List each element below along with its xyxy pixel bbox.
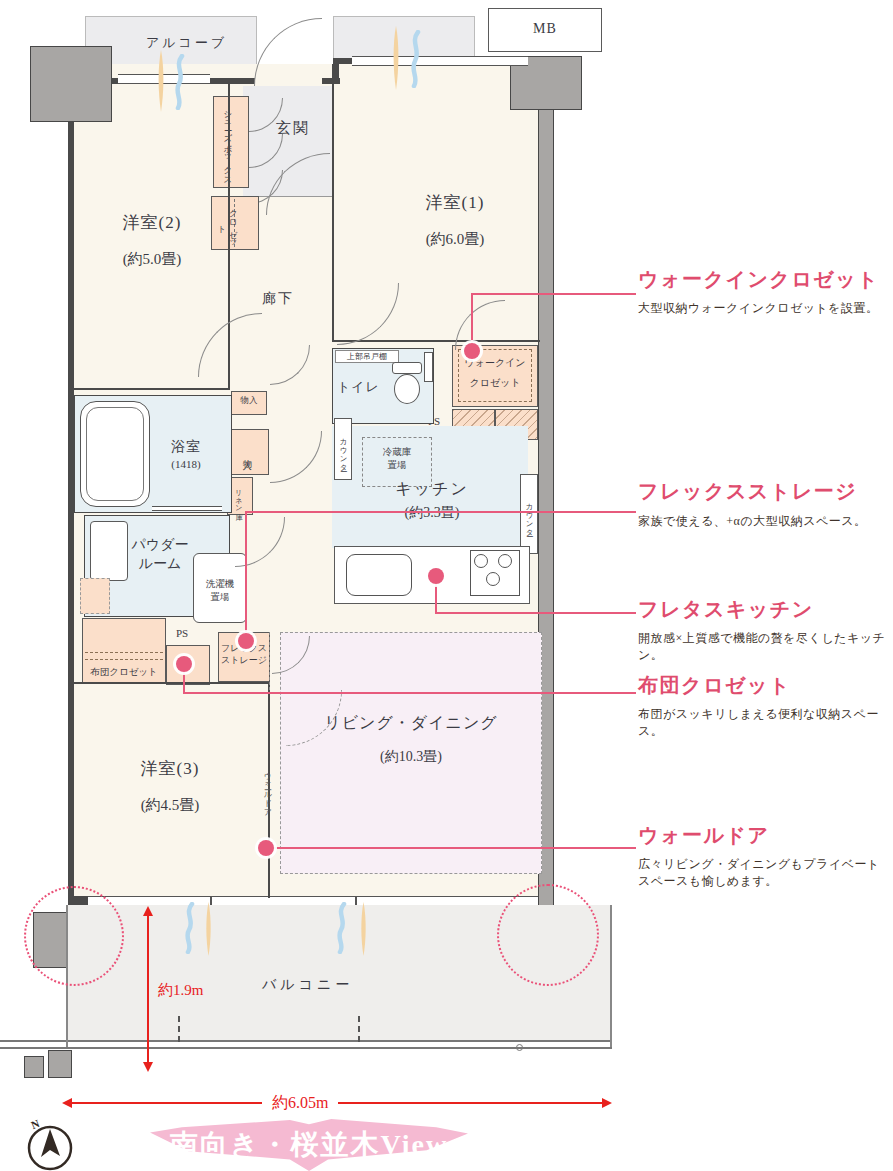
depth-dimension-line [147, 914, 149, 1064]
annotation-title-walldoor: ウォールドア [638, 822, 769, 849]
annotation-body-wic: 大型収納ウォークインクロゼットを設置。 [638, 300, 890, 317]
alcove-label: アルコーブ [146, 34, 227, 52]
powder-peach-box [80, 578, 110, 614]
callout-line-flex [245, 511, 636, 513]
callout-dot-kitchen [428, 568, 444, 584]
counter-left-label: カウンター [338, 422, 348, 478]
balcony-divider-dash [178, 1016, 180, 1042]
toilet-label: トイレ [337, 378, 380, 396]
counter-right-label: カウンター [524, 480, 534, 550]
annotation-title-flex: フレックスストレージ [638, 478, 857, 505]
ld-size: (約10.3畳) [300, 748, 522, 767]
powder-line2: ルーム [118, 555, 202, 574]
depth-arrow-down [143, 1062, 153, 1072]
western1-size: (約6.0畳) [385, 229, 525, 249]
balcony-divider-dash [358, 1016, 360, 1042]
balcony-end-block [48, 1050, 72, 1078]
western2-label: 洋室(2) (約5.0畳) [82, 212, 222, 269]
airflow-icon [172, 54, 186, 110]
balcony-rail-outer [0, 1040, 612, 1042]
annotation-title-kitchen: フレタスキッチン [638, 596, 814, 623]
washer-space-label: 洗濯機 置場 [193, 578, 247, 604]
bathroom-size: (1418) [150, 457, 222, 472]
annotation-title-wic: ウォークインクロゼット [638, 266, 879, 293]
view-banner-label: 南向き・桜並木View [150, 1126, 468, 1164]
kitchen-size: (約3.3畳) [352, 504, 512, 523]
balcony-end-block [24, 1056, 44, 1078]
powder-room-label: パウダー ルーム [118, 536, 202, 574]
fridge-space-label: 冷蔵庫 置場 [362, 446, 432, 472]
callout-line-wic [471, 293, 636, 295]
common-corridor-area [333, 16, 475, 59]
western1-label: 洋室(1) (約6.0畳) [385, 192, 525, 249]
wic-line2: クロゼット [452, 376, 538, 390]
meter-box-label: MB [488, 20, 602, 39]
ps2-label: PS [176, 626, 188, 641]
futon-shelf-lines [85, 652, 163, 660]
sunlight-icon [356, 902, 371, 956]
wall-door-label: ウォールドア [261, 750, 272, 830]
western2-name: 洋室(2) [82, 212, 222, 235]
pillar-highlight-circle [24, 886, 124, 986]
balcony-label: バルコニー [262, 976, 353, 995]
fridge-line2: 置場 [362, 459, 432, 472]
stove-burner [474, 554, 488, 568]
sunlight-icon [388, 26, 404, 90]
western3-label: 洋室(3) (約4.5畳) [100, 758, 240, 815]
linen-label: リネン庫 [233, 479, 242, 513]
kitchen-label: キッチン (約3.3畳) [352, 478, 512, 522]
upper-cabinet-label: 上部吊戸棚 [336, 352, 398, 363]
stove-burner [486, 572, 500, 586]
walk-in-closet-label: ウォークイン クロゼット [452, 356, 538, 389]
bathroom-label: 浴室 (1418) [150, 438, 222, 472]
sunlight-icon [201, 902, 216, 956]
width-dimension-label: 約6.05m [262, 1092, 338, 1114]
callout-dot-walldoor [258, 840, 274, 856]
annotation-title-futon: 布団クロゼット [638, 672, 791, 699]
fridge-line1: 冷蔵庫 [362, 446, 432, 459]
callout-dot-futon [176, 656, 192, 672]
washer-line2: 置場 [193, 591, 247, 604]
storage2-label: 物入 [241, 434, 253, 472]
callout-line-walldoor [265, 847, 636, 849]
kitchen-name: キッチン [352, 478, 512, 500]
callout-line-flex [245, 511, 247, 641]
wall-door-track [269, 632, 270, 690]
annotation-body-kitchen: 開放感×上質感で機能の贅を尽くしたキッチン。 [638, 630, 890, 665]
annotation-body-walldoor: 広々リビング・ダイニングもプライベートスペースも愉しめます。 [638, 856, 890, 891]
bathroom-name: 浴室 [150, 438, 222, 457]
western1-name: 洋室(1) [385, 192, 525, 215]
depth-dimension-label: 約1.9m [158, 980, 203, 1000]
toilet-bowl [394, 374, 420, 404]
powder-line1: パウダー [118, 536, 202, 555]
annotation-body-flex: 家族で使える、+αの大型収納スペース。 [638, 513, 890, 530]
sunlight-icon [153, 50, 169, 112]
hallway-label: 廊下 [262, 290, 294, 309]
callout-dot-wic [464, 343, 480, 359]
flex-line2: ストレージ [218, 654, 270, 666]
western3-name: 洋室(3) [100, 758, 240, 781]
airflow-icon [334, 902, 348, 954]
vanity [90, 521, 128, 581]
toilet-sink [424, 352, 433, 382]
depth-arrow-up [143, 906, 153, 916]
bathtub-inner [86, 407, 144, 501]
callout-line-kitchen [435, 612, 636, 614]
floorplan-page: アルコーブ MB 玄関 シューズボックス クロゼット 洋室(2) (約5.0畳)… [0, 0, 893, 1171]
bathroom-door [152, 506, 222, 511]
futon-closet-label: 布団クロゼット [83, 666, 165, 679]
storage1-label: 物入 [231, 395, 267, 406]
toilet-tank [392, 362, 422, 374]
western3-size: (約4.5畳) [100, 795, 240, 815]
callout-dot-flex [238, 633, 254, 649]
compass-icon: N [20, 1116, 80, 1171]
balcony-side-right [610, 905, 612, 1047]
airflow-icon [182, 902, 196, 954]
living-dining-label: リビング・ダイニング (約10.3畳) [300, 712, 522, 766]
annotation-body-futon: 布団がスッキリしまえる便利な収納スペース。 [638, 706, 890, 741]
callout-line-futon [183, 692, 636, 694]
kitchen-sink [346, 554, 412, 596]
balcony-drain [516, 1044, 523, 1051]
stove-burner [498, 554, 512, 568]
width-arrow-left [62, 1098, 72, 1108]
wic-line1: ウォークイン [452, 356, 538, 370]
western2-size: (約5.0畳) [82, 249, 222, 269]
pillar-highlight-circle [497, 884, 599, 986]
entrance-door-arc [254, 18, 322, 86]
washer-line1: 洗濯機 [193, 578, 247, 591]
width-arrow-right [602, 1098, 612, 1108]
airflow-icon [408, 30, 422, 88]
